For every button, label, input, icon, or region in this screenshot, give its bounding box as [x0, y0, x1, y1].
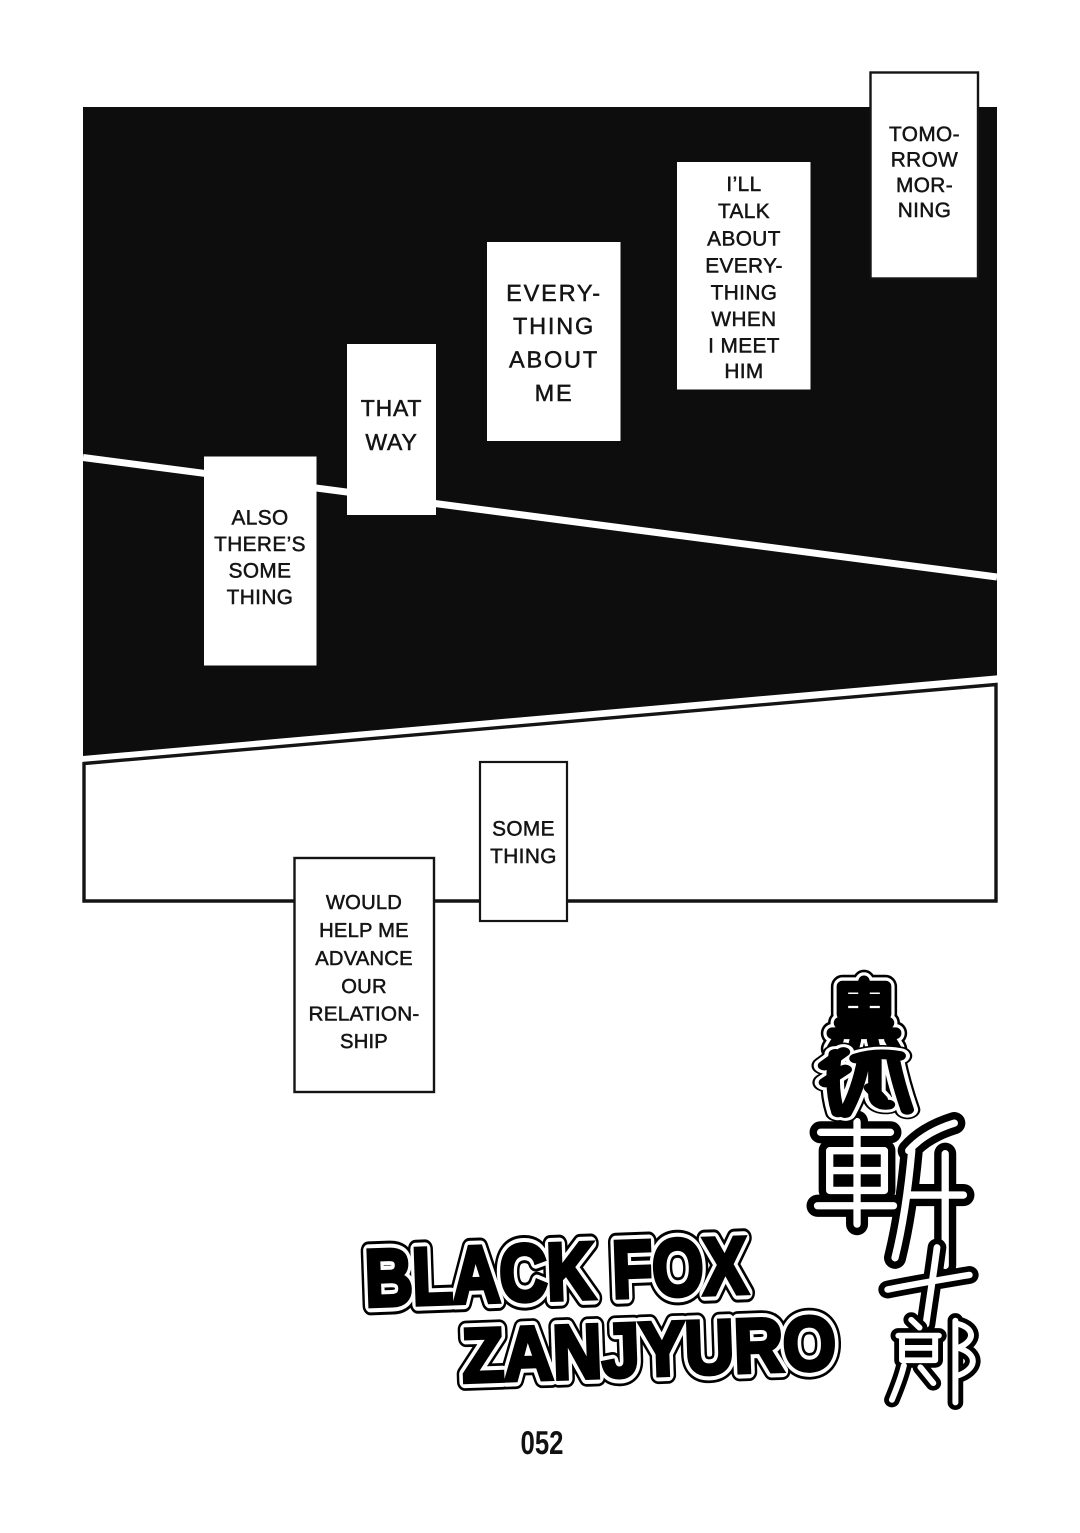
svg-text:TALK: TALK: [718, 200, 770, 223]
svg-text:THAT: THAT: [361, 395, 423, 421]
svg-text:I’LL: I’LL: [726, 173, 761, 196]
svg-text:THING: THING: [490, 845, 557, 868]
svg-text:WOULD: WOULD: [326, 892, 402, 914]
svg-text:EVERY-: EVERY-: [506, 280, 602, 306]
svg-text:NING: NING: [898, 199, 952, 222]
svg-text:SHIP: SHIP: [340, 1031, 388, 1053]
svg-text:OUR: OUR: [341, 976, 386, 998]
svg-text:SOME: SOME: [229, 560, 292, 583]
svg-text:WHEN: WHEN: [711, 308, 776, 331]
svg-text:ME: ME: [535, 380, 574, 406]
svg-text:THING: THING: [711, 282, 778, 305]
svg-text:TOMO-: TOMO-: [889, 123, 960, 146]
svg-text:ALSO: ALSO: [231, 507, 288, 530]
svg-text:RELATION-: RELATION-: [309, 1004, 420, 1026]
svg-text:THING: THING: [227, 586, 294, 609]
svg-text:ZANJYURO: ZANJYURO: [461, 1301, 838, 1399]
svg-text:WAY: WAY: [365, 429, 417, 455]
svg-text:ADVANCE: ADVANCE: [315, 948, 413, 970]
svg-text:HIM: HIM: [724, 360, 763, 383]
svg-text:RROW: RROW: [891, 149, 958, 172]
svg-text:EVERY-: EVERY-: [705, 255, 783, 278]
svg-text:ABOUT: ABOUT: [707, 228, 781, 251]
svg-text:SOME: SOME: [492, 818, 555, 841]
svg-text:MOR-: MOR-: [896, 174, 953, 197]
svg-text:THING: THING: [513, 313, 595, 339]
svg-text:THERE’S: THERE’S: [214, 533, 306, 556]
svg-text:ABOUT: ABOUT: [509, 347, 599, 373]
svg-text:I MEET: I MEET: [708, 335, 780, 358]
svg-text:052: 052: [521, 1424, 564, 1461]
svg-text:HELP ME: HELP ME: [319, 920, 409, 942]
